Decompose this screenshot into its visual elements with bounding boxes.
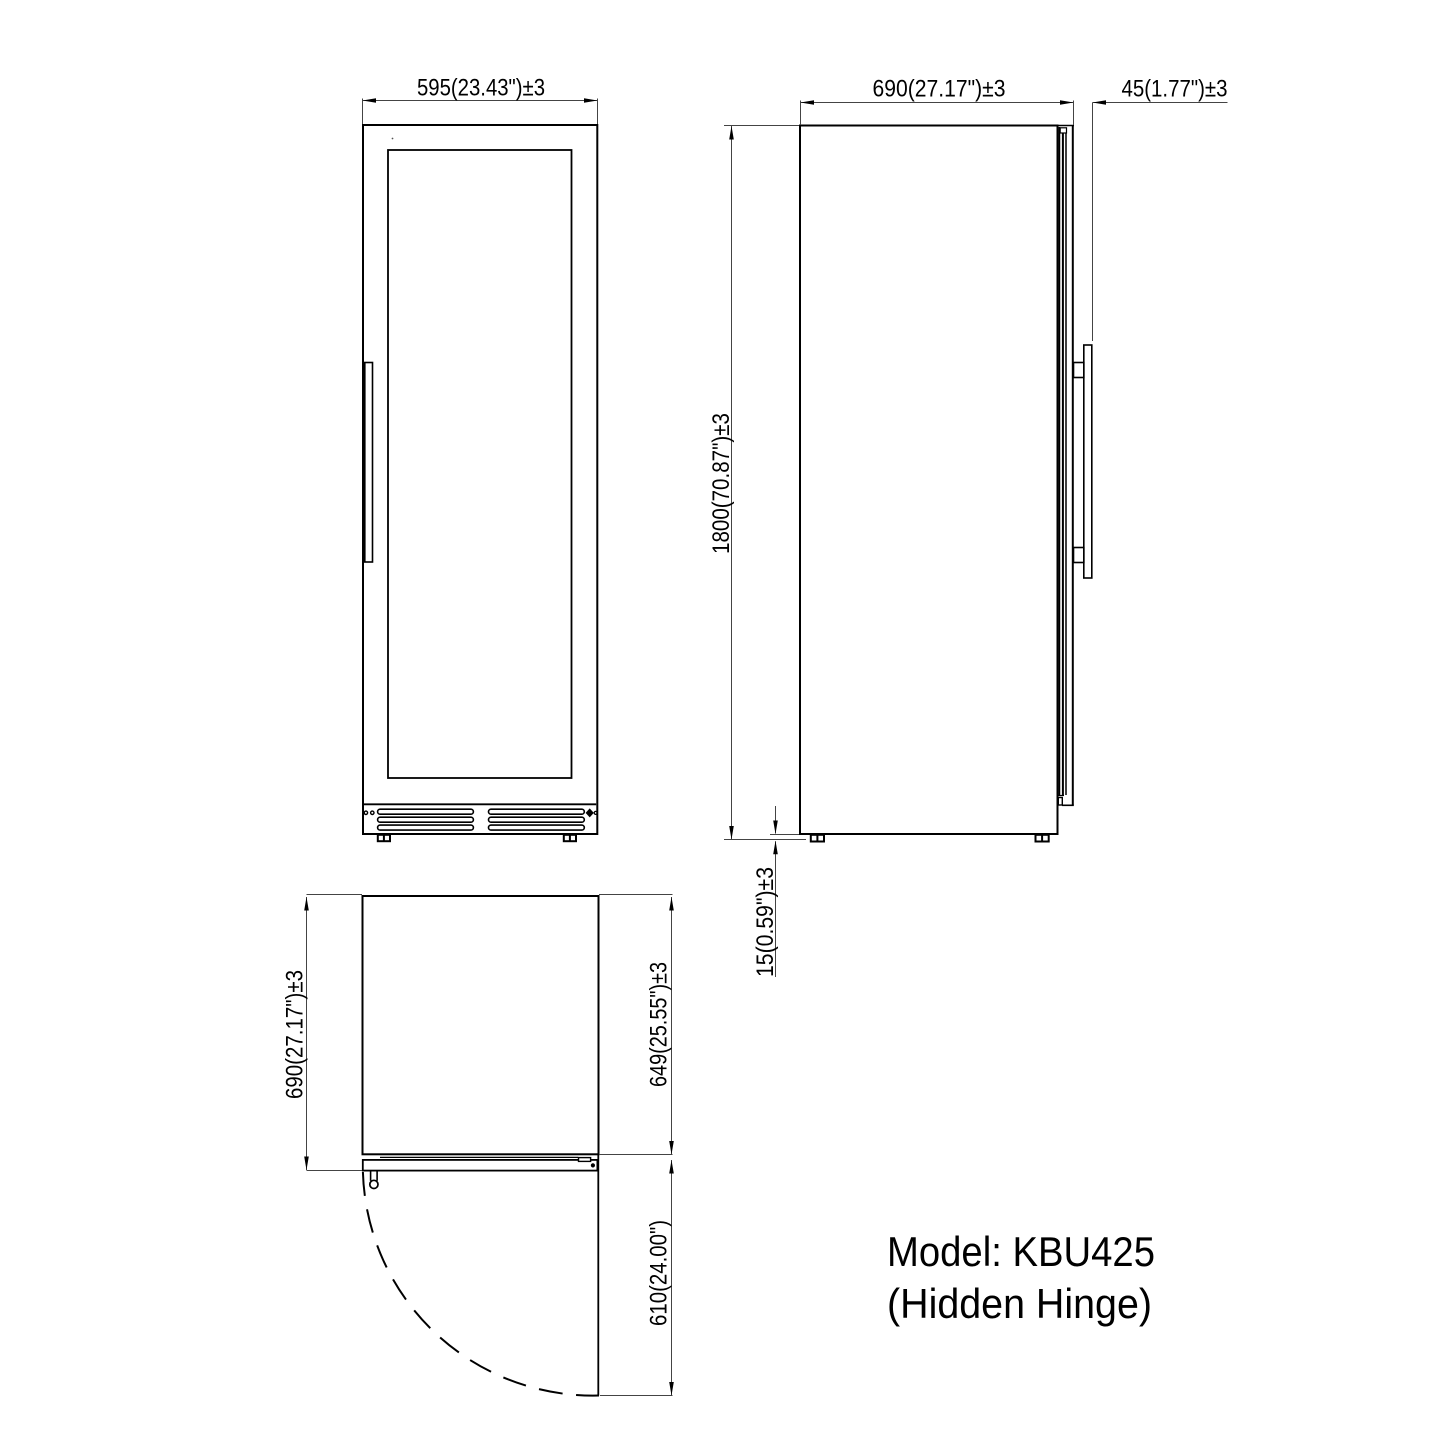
svg-text:649(25.55")±3: 649(25.55")±3: [646, 962, 673, 1087]
svg-text:690(27.17")±3: 690(27.17")±3: [282, 970, 309, 1099]
svg-text:690(27.17")±3: 690(27.17")±3: [873, 76, 1006, 103]
svg-text:610(24.00"): 610(24.00"): [646, 1220, 673, 1326]
svg-text:45(1.77")±3: 45(1.77")±3: [1122, 76, 1228, 103]
svg-text:(Hidden Hinge): (Hidden Hinge): [887, 1280, 1152, 1327]
svg-text:15(0.59")±3: 15(0.59")±3: [752, 867, 779, 977]
svg-text:595(23.43")±3: 595(23.43")±3: [417, 75, 545, 102]
svg-text:Model: KBU425: Model: KBU425: [887, 1228, 1155, 1275]
svg-text:1800(70.87")±3: 1800(70.87")±3: [708, 413, 735, 554]
